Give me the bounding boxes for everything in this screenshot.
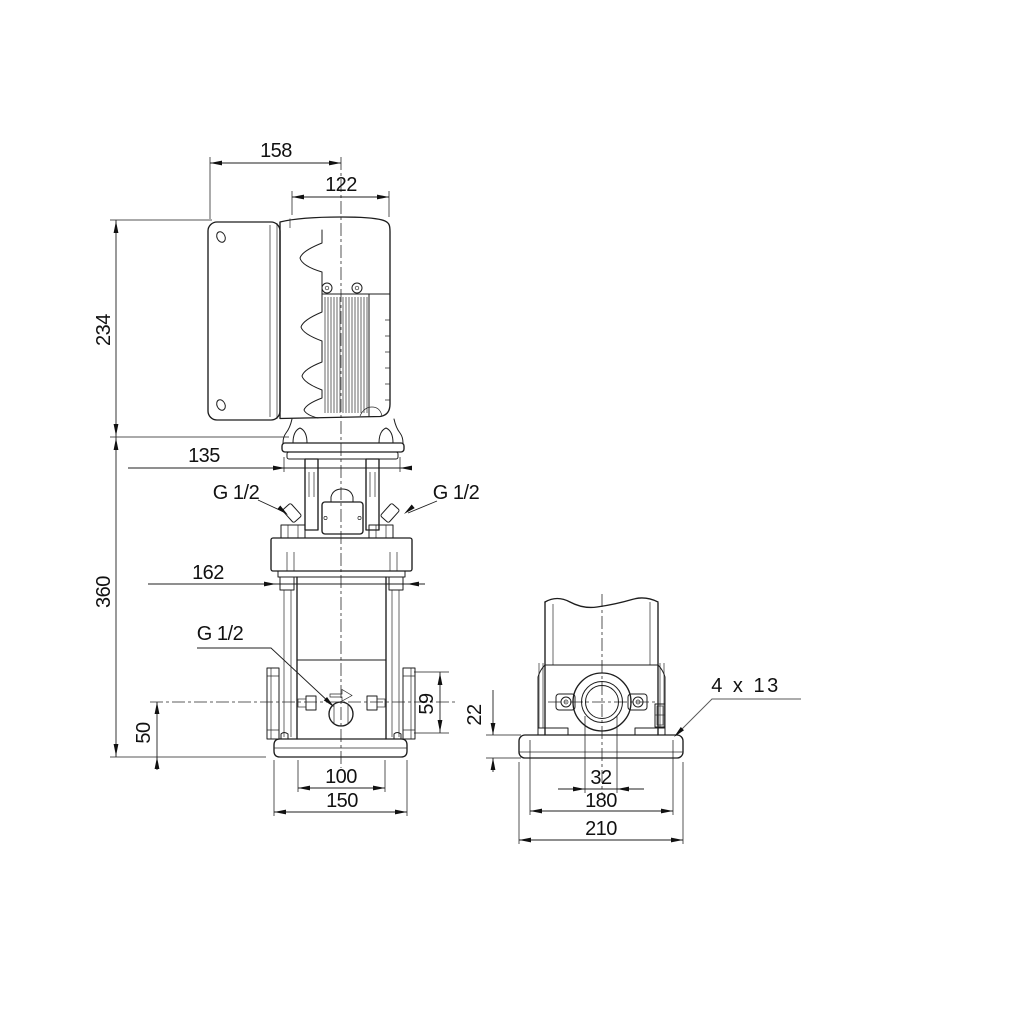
dim-label-210: 210 [585, 818, 617, 840]
label-g12-left: G 1/2 [213, 482, 260, 504]
plug-hex-right [369, 525, 393, 538]
foot-pad [635, 728, 665, 735]
staybolt-nut [389, 577, 403, 590]
dimension-overall-width: 158 [210, 140, 341, 219]
dim-label-150: 150 [326, 790, 358, 812]
base-clip [281, 733, 288, 740]
terminal-screw-icon [322, 283, 332, 293]
side-chamber-sleeve [538, 598, 665, 735]
plug-hex-left [281, 525, 305, 538]
pump-dimensional-drawing-page: 158 122 234 135 [0, 0, 1024, 1024]
callout-vent-plug-right: G 1/2 [404, 482, 480, 514]
shaft-end [331, 489, 353, 502]
label-g12-drain: G 1/2 [197, 623, 244, 645]
fin-silhouette [300, 230, 322, 418]
cover-screw-hole-icon [215, 230, 227, 243]
side-plug [306, 696, 316, 710]
dimension-baseplate-thickness: 22 [464, 690, 521, 772]
terminal-screw-icon [352, 283, 362, 293]
motor-control-box [208, 222, 280, 420]
dimension-motor-height: 234 [93, 220, 289, 437]
dim-label-59: 59 [416, 693, 438, 715]
side-baseplate [519, 735, 683, 758]
label-4x13: 4 x 13 [711, 675, 780, 697]
dim-label-234: 234 [93, 314, 115, 346]
side-view [519, 594, 683, 795]
dim-label-122: 122 [325, 174, 357, 196]
coupling-section [281, 459, 400, 538]
dimension-port-bore: 32 [558, 716, 644, 793]
dimension-port-flange-height: 59 [414, 672, 449, 733]
port-flange-left [267, 668, 279, 739]
pump-dimensional-drawing: 158 122 234 135 [0, 0, 1024, 1024]
port-flange-right [403, 668, 415, 739]
dimension-base-hole-spacing-front: 100 [298, 760, 385, 792]
dimension-motor-width: 122 [292, 174, 389, 217]
coupling-guard [366, 459, 379, 530]
coupling-guard [305, 459, 318, 530]
pump-head-flange [271, 538, 412, 571]
staybolts [284, 590, 399, 737]
cover-screw-hole-icon [215, 398, 227, 411]
dim-label-158: 158 [260, 140, 292, 162]
vent-plug-right [380, 503, 400, 523]
motor-stool [282, 419, 404, 459]
callout-vent-plug-left: G 1/2 [213, 482, 288, 515]
pump-base [274, 733, 407, 758]
pump-foot [150, 668, 455, 739]
dimension-port-center-height: 50 [133, 702, 159, 770]
base-clip [394, 733, 401, 740]
dim-label-360: 360 [93, 576, 115, 608]
dim-label-100: 100 [325, 766, 357, 788]
label-g12-right: G 1/2 [433, 482, 480, 504]
break-line [545, 598, 658, 607]
callout-drain-plug: G 1/2 [197, 623, 334, 707]
dimension-port-face-width: 162 [148, 562, 425, 586]
dim-label-50: 50 [133, 722, 155, 744]
cooling-fins [322, 283, 390, 416]
staybolt-nut [280, 577, 294, 590]
dim-label-32: 32 [590, 767, 612, 789]
pump-head-and-chambers [271, 538, 412, 739]
callout-mounting-holes: 4 x 13 [674, 675, 801, 737]
coupling [322, 502, 363, 534]
motor-body [280, 217, 390, 419]
dim-label-22: 22 [464, 704, 486, 726]
foot-pad [538, 728, 568, 735]
dim-label-162: 162 [192, 562, 224, 584]
side-plug [367, 696, 377, 710]
dimensions: 158 122 234 135 [93, 140, 801, 844]
dim-label-135: 135 [188, 445, 220, 467]
chamber-sleeve [297, 577, 386, 739]
dim-label-180: 180 [585, 790, 617, 812]
